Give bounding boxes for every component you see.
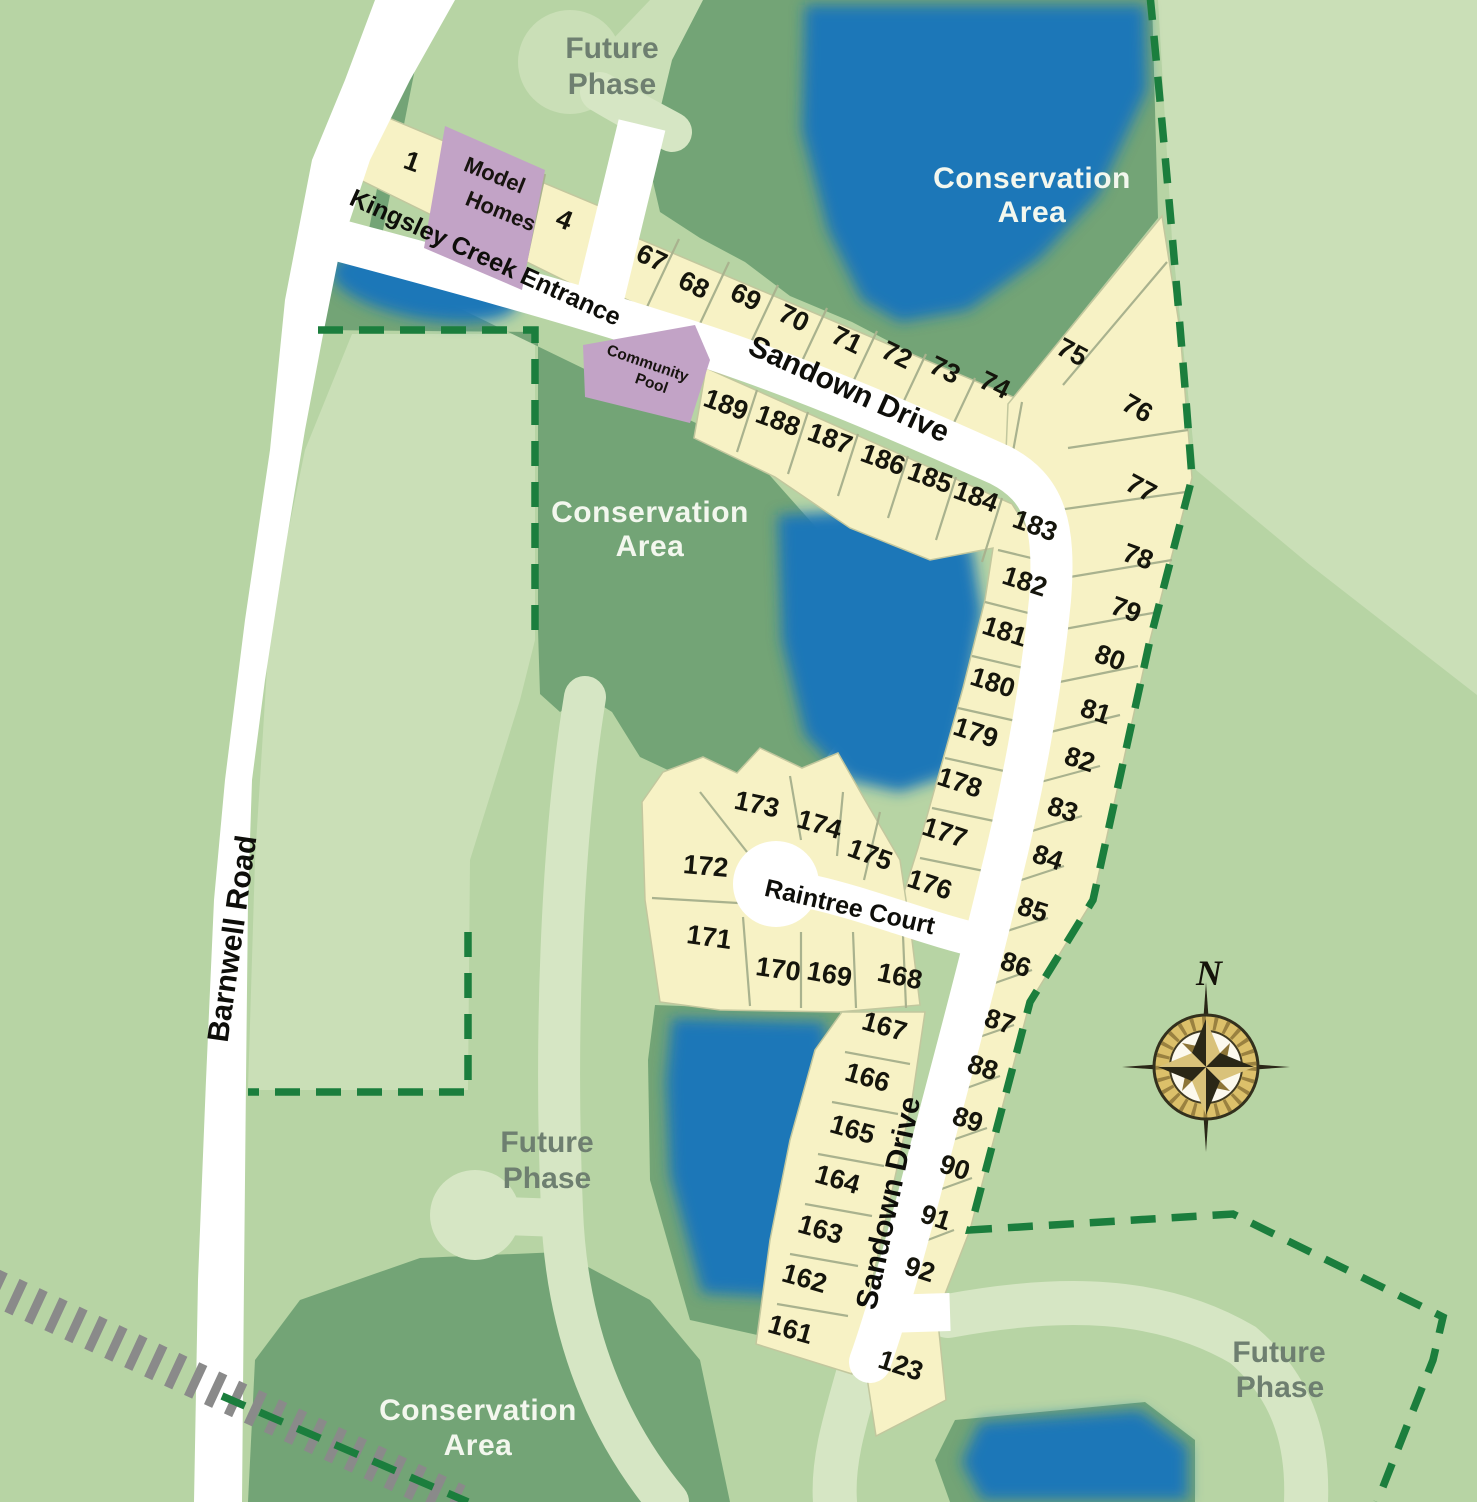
lot-170: 170 — [754, 951, 803, 987]
conservation-bottom-line2: Area — [444, 1429, 513, 1462]
sandown-east-stub-road — [885, 1312, 950, 1314]
conservation-top-line1: Conservation — [933, 162, 1131, 195]
conservation-mid-line2: Area — [616, 530, 685, 563]
lot-172: 172 — [682, 849, 730, 883]
compass-north-label: N — [1195, 953, 1224, 993]
future-bottom-line2: Phase — [1236, 1371, 1324, 1404]
future-bottom-line1: Future — [1232, 1336, 1325, 1369]
pond-bottom-right — [962, 1410, 1188, 1500]
future-mid-line1: Future — [500, 1126, 593, 1159]
site-plan-map: N Conservation Area Conservation Area Co… — [0, 0, 1477, 1502]
future-top-line1: Future — [565, 32, 658, 65]
map-canvas: N Conservation Area Conservation Area Co… — [0, 0, 1477, 1502]
lot-171: 171 — [685, 919, 734, 955]
future-mid-line2: Phase — [503, 1162, 591, 1195]
conservation-top-line2: Area — [998, 196, 1067, 229]
conservation-mid-line1: Conservation — [551, 496, 749, 529]
future-top-line2: Phase — [568, 68, 656, 101]
conservation-bottom-line1: Conservation — [379, 1394, 577, 1427]
